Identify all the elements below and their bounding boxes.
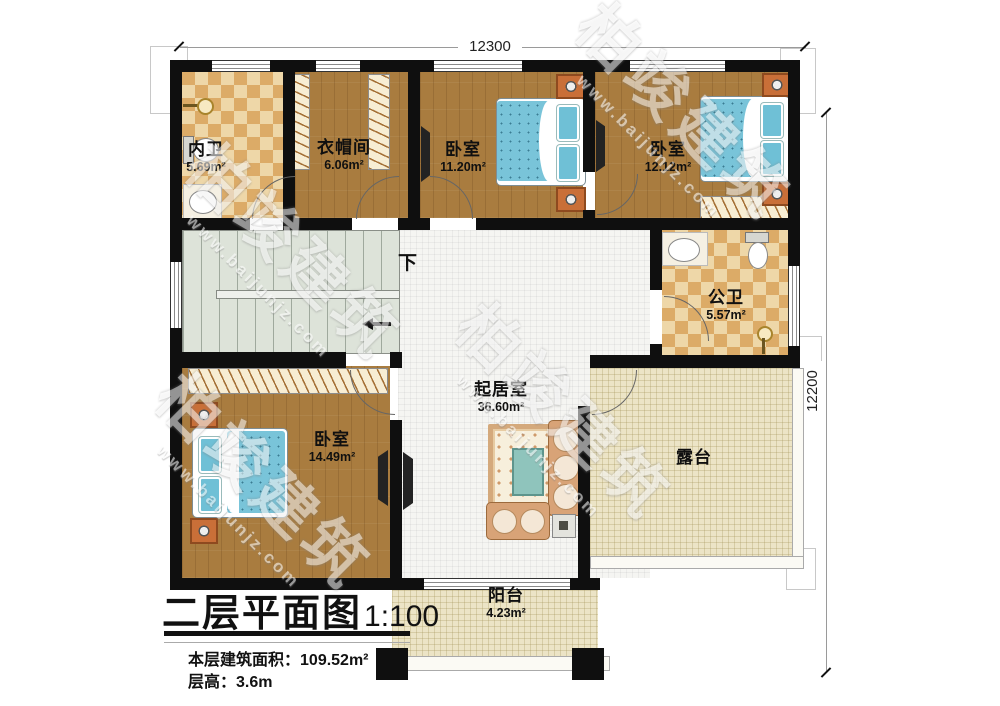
room-name: 卧室 bbox=[290, 430, 374, 450]
stair-direction-arrow-bar bbox=[373, 322, 391, 326]
room-label-balcony: 阳台 4.23m² bbox=[466, 586, 546, 620]
nightstand bbox=[556, 74, 586, 99]
stat-floor-height: 层高：3.6m bbox=[188, 668, 272, 692]
room-label-bedroom-top-mid: 卧室 11.20m² bbox=[421, 140, 505, 174]
room-area: 14.49m² bbox=[290, 450, 374, 464]
shower-head bbox=[197, 98, 214, 115]
bed-bedroom-bottom-left bbox=[192, 428, 288, 518]
room-label-public-bath: 公卫 5.57m² bbox=[688, 288, 764, 322]
balcony-column-left bbox=[376, 648, 408, 680]
window bbox=[788, 266, 800, 346]
window bbox=[316, 60, 360, 72]
room-label-cloakroom: 衣帽间 6.06m² bbox=[303, 138, 385, 172]
room-area: 36.60m² bbox=[458, 400, 544, 414]
room-area: 6.06m² bbox=[303, 158, 385, 172]
window bbox=[212, 60, 270, 72]
wall bbox=[650, 230, 662, 290]
room-name: 卧室 bbox=[626, 140, 710, 160]
wall bbox=[294, 218, 352, 230]
title-scale: 1:100 bbox=[364, 600, 439, 633]
room-area: 5.57m² bbox=[688, 308, 764, 322]
terrace-railing-right bbox=[792, 368, 804, 562]
title-block: 二层平面图1:100 bbox=[162, 582, 439, 637]
stat-label: 层高： bbox=[188, 674, 236, 691]
room-name: 卧室 bbox=[421, 140, 505, 160]
tv-living-room bbox=[403, 452, 413, 510]
page-title: 二层平面图 bbox=[162, 593, 362, 635]
dimension-right-value: 12200 bbox=[804, 361, 822, 421]
stat-value: 3.6m bbox=[236, 674, 272, 691]
shower-arm bbox=[762, 338, 765, 354]
wall bbox=[390, 352, 402, 368]
room-area: 5.69m² bbox=[168, 160, 244, 174]
stat-value: 109.52m² bbox=[300, 652, 369, 669]
bed-bedroom-top-mid bbox=[496, 98, 586, 186]
title-underline bbox=[164, 631, 410, 636]
window bbox=[434, 60, 522, 72]
bed-bedroom-top-right bbox=[700, 96, 790, 182]
room-label-terrace: 露台 bbox=[656, 448, 732, 468]
wall bbox=[476, 218, 800, 230]
wall bbox=[390, 420, 402, 578]
room-name: 露台 bbox=[656, 448, 732, 468]
room-area: 11.20m² bbox=[421, 160, 505, 174]
wall bbox=[408, 60, 420, 230]
stat-label: 本层建筑面积： bbox=[188, 652, 300, 669]
nightstand bbox=[190, 402, 218, 428]
wall bbox=[583, 60, 595, 172]
sink-basin bbox=[668, 238, 700, 262]
dimension-line-right bbox=[826, 112, 827, 672]
wall bbox=[570, 578, 600, 590]
stair-handrail bbox=[216, 290, 400, 299]
window bbox=[170, 262, 182, 328]
stair-direction-arrow bbox=[362, 318, 373, 330]
title-underline-thin bbox=[164, 642, 410, 643]
room-name: 公卫 bbox=[688, 288, 764, 308]
stairs-down-label: 下 bbox=[398, 248, 417, 275]
room-name: 衣帽间 bbox=[303, 138, 385, 158]
shower-head bbox=[757, 326, 773, 342]
room-label-bedroom-top-right: 卧室 12.12m² bbox=[626, 140, 710, 174]
floor-plan-canvas: 内卫 5.69m² 衣帽间 6.06m² 卧室 11.20m² 卧室 12.12… bbox=[0, 0, 1000, 706]
wall bbox=[170, 352, 346, 368]
wall bbox=[578, 406, 590, 578]
nightstand bbox=[556, 187, 586, 212]
sink-basin bbox=[189, 190, 217, 214]
room-area: 12.12m² bbox=[626, 160, 710, 174]
room-name: 阳台 bbox=[466, 586, 546, 606]
stat-floor-area: 本层建筑面积：109.52m² bbox=[188, 646, 369, 670]
sofa-bottom bbox=[486, 502, 550, 540]
nightstand bbox=[190, 518, 218, 544]
wall bbox=[398, 218, 430, 230]
balcony-column-right bbox=[572, 648, 604, 680]
dimension-top-value: 12300 bbox=[458, 38, 522, 56]
side-table bbox=[552, 514, 576, 538]
room-area: 4.23m² bbox=[466, 606, 546, 620]
room-name: 内卫 bbox=[168, 140, 244, 160]
window bbox=[630, 60, 725, 72]
room-name: 起居室 bbox=[458, 380, 544, 400]
coffee-table bbox=[512, 448, 544, 496]
toilet-bowl bbox=[748, 242, 768, 269]
wall bbox=[170, 218, 250, 230]
wall bbox=[590, 355, 800, 368]
room-label-bedroom-bottom-left: 卧室 14.49m² bbox=[290, 430, 374, 464]
tv-bedroom-bottom-left bbox=[378, 450, 388, 506]
room-label-inner-bath: 内卫 5.69m² bbox=[168, 140, 244, 174]
terrace-railing-bottom bbox=[590, 556, 804, 569]
room-label-living-room: 起居室 36.60m² bbox=[458, 380, 544, 414]
tv-bedroom-top-right bbox=[596, 120, 605, 172]
